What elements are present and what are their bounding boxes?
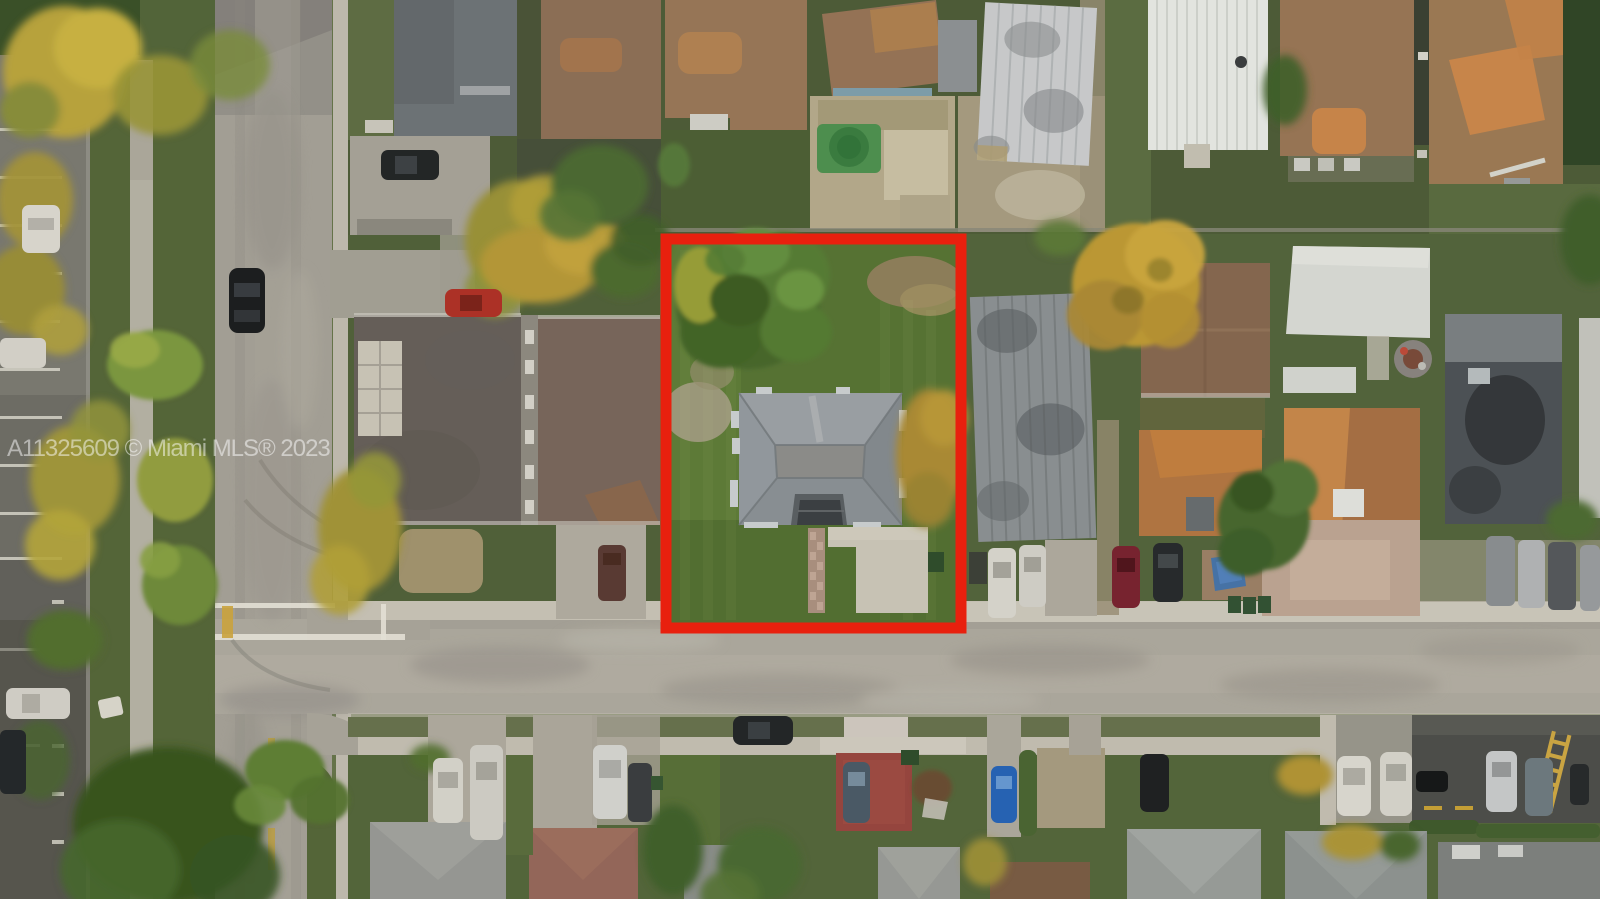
svg-text:A11325609 © Miami MLS® 2023: A11325609 © Miami MLS® 2023 <box>7 435 330 462</box>
